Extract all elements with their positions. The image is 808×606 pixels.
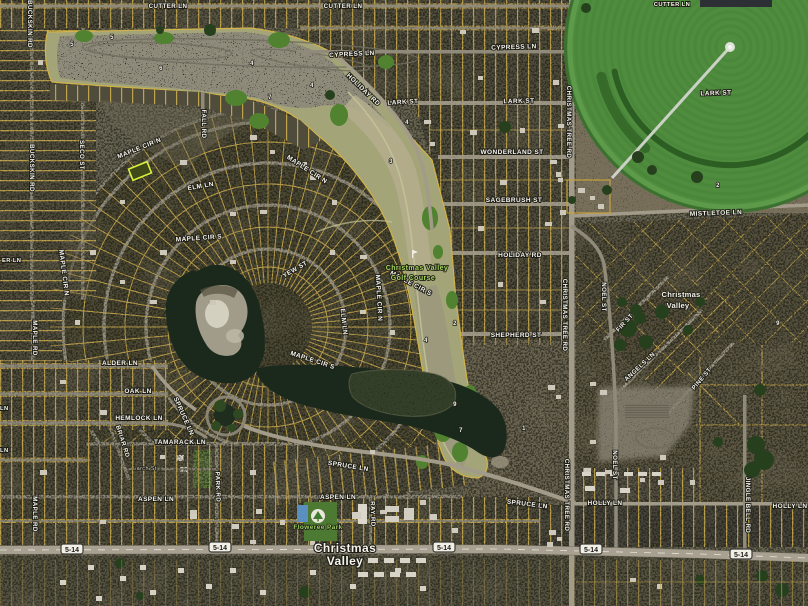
svg-text:HEMLOCK LN: HEMLOCK LN <box>115 415 162 422</box>
svg-text:5-14: 5-14 <box>584 547 598 554</box>
svg-text:Christmas: Christmas <box>314 541 376 555</box>
svg-text:ER LN: ER LN <box>2 258 21 264</box>
svg-text:7: 7 <box>268 95 272 101</box>
svg-text:2: 2 <box>716 183 720 189</box>
svg-text:5-14: 5-14 <box>213 545 227 552</box>
svg-text:CUTTER LN: CUTTER LN <box>324 3 363 10</box>
svg-text:Golf Course: Golf Course <box>391 275 435 282</box>
svg-text:Christmas: Christmas <box>662 290 701 299</box>
svg-text:WONDERLAND ST: WONDERLAND ST <box>481 149 544 156</box>
svg-text:Valley: Valley <box>667 301 690 310</box>
svg-text:LN: LN <box>0 448 9 454</box>
svg-text:9: 9 <box>776 321 780 327</box>
svg-text:LARK ST: LARK ST <box>503 98 534 106</box>
svg-text:PARK RD: PARK RD <box>213 472 221 503</box>
svg-text:JINGLE BELL RD: JINGLE BELL RD <box>744 477 751 533</box>
svg-text:4: 4 <box>405 120 409 126</box>
svg-text:CHRISTMAS TREE RD: CHRISTMAS TREE RD <box>565 86 572 159</box>
svg-text:2: 2 <box>453 321 457 327</box>
svg-text:NOEL ST: NOEL ST <box>600 282 607 312</box>
svg-text:MAPLE RD: MAPLE RD <box>31 496 38 532</box>
svg-text:4: 4 <box>250 61 254 67</box>
svg-text:Christmas Valley: Christmas Valley <box>386 265 448 272</box>
svg-text:LN: LN <box>0 406 9 412</box>
svg-text:7: 7 <box>459 428 463 434</box>
svg-text:Larch St: Larch St <box>133 466 157 472</box>
svg-text:CHRISTMAS TREE RD: CHRISTMAS TREE RD <box>563 459 570 532</box>
svg-text:BUCKSKIN RD: BUCKSKIN RD <box>28 144 35 192</box>
svg-text:Valley: Valley <box>327 554 363 568</box>
svg-text:SAGEBRUSH ST: SAGEBRUSH ST <box>486 197 542 204</box>
svg-text:5: 5 <box>70 42 74 48</box>
svg-text:ALDER LN: ALDER LN <box>102 360 138 367</box>
svg-text:Floweree Park: Floweree Park <box>293 524 342 531</box>
svg-text:4: 4 <box>310 83 314 89</box>
svg-text:4: 4 <box>424 338 428 344</box>
svg-text:5-14: 5-14 <box>734 552 748 559</box>
svg-text:5-14: 5-14 <box>437 545 451 552</box>
svg-text:LARK ST: LARK ST <box>700 89 731 97</box>
svg-text:9: 9 <box>453 402 457 408</box>
svg-text:5: 5 <box>110 35 114 41</box>
svg-text:RAY RD: RAY RD <box>369 501 377 527</box>
svg-text:HOLIDAY RD: HOLIDAY RD <box>498 252 542 259</box>
svg-text:NOEL ST: NOEL ST <box>611 450 618 480</box>
svg-text:HOLLY LN: HOLLY LN <box>588 500 623 507</box>
svg-text:1: 1 <box>522 426 526 432</box>
svg-text:SECO ST: SECO ST <box>78 140 85 170</box>
svg-text:CUTTER LN: CUTTER LN <box>654 2 690 8</box>
svg-text:HOLLY LN: HOLLY LN <box>773 503 808 510</box>
svg-text:OAK LN: OAK LN <box>124 388 151 395</box>
svg-text:CHRISTMAS TREE RD: CHRISTMAS TREE RD <box>561 279 568 352</box>
svg-text:FALL RD: FALL RD <box>200 110 207 139</box>
svg-text:CUTTER LN: CUTTER LN <box>149 3 188 10</box>
svg-text:5-14: 5-14 <box>65 547 79 554</box>
svg-text:SHEPHERD ST: SHEPHERD ST <box>491 332 542 339</box>
svg-text:TAMARACK LN: TAMARACK LN <box>154 439 206 446</box>
svg-text:BUCKSKIN RD: BUCKSKIN RD <box>26 0 33 48</box>
svg-text:ASPEN LN: ASPEN LN <box>138 496 174 503</box>
svg-text:MAPLE RD: MAPLE RD <box>31 320 38 356</box>
svg-text:3: 3 <box>389 159 393 165</box>
svg-text:6: 6 <box>159 66 163 72</box>
svg-text:ASPEN LN: ASPEN LN <box>320 494 356 501</box>
